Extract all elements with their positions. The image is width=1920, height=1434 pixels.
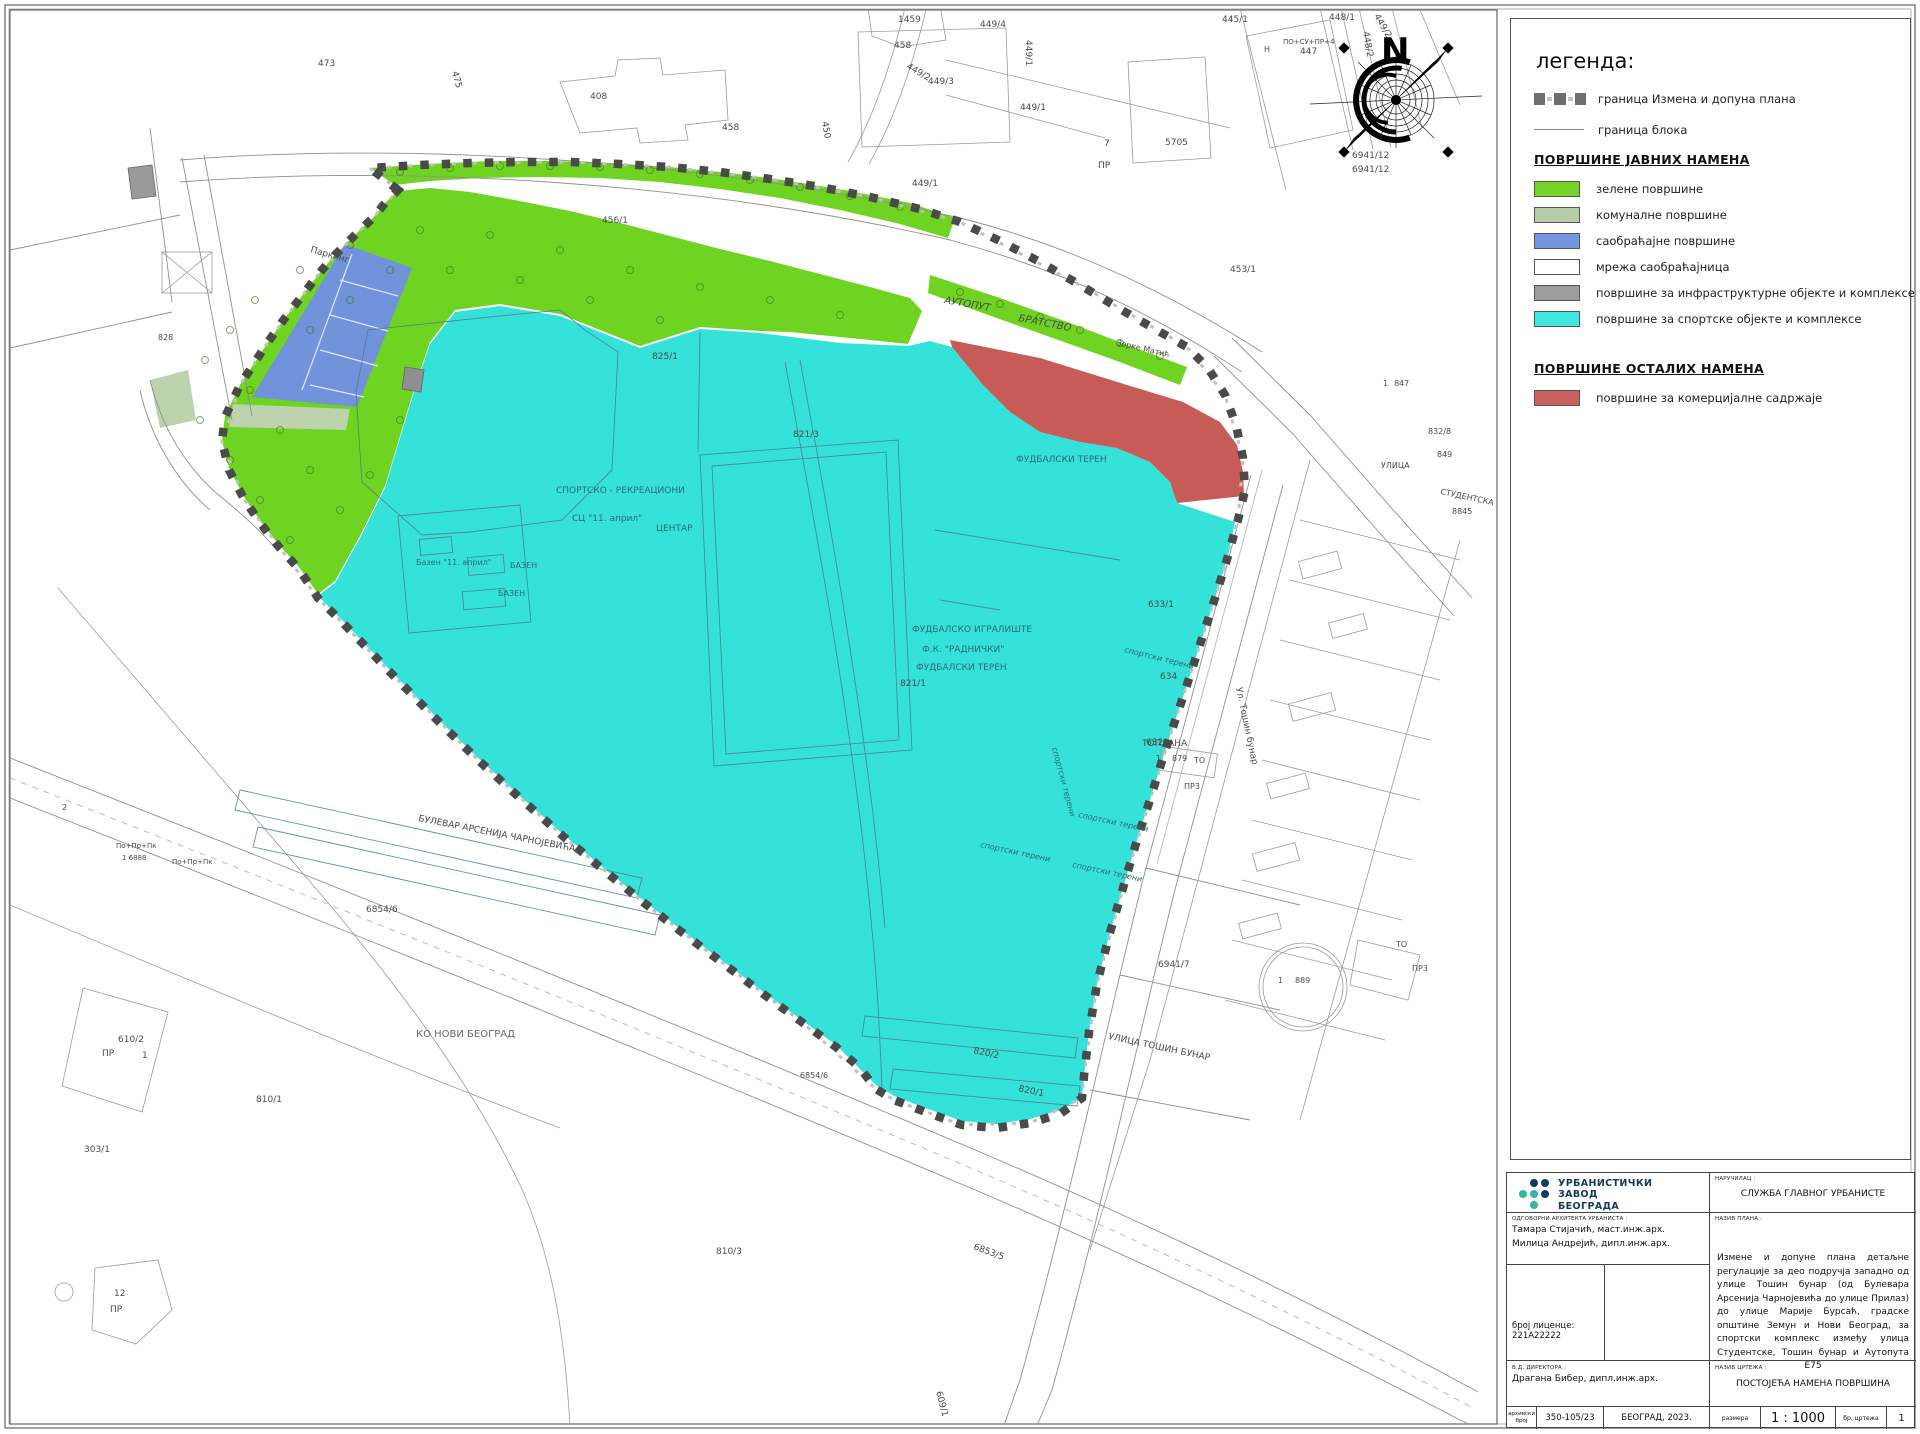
map-label: 6941/12: [1352, 151, 1389, 161]
map-label: 828: [158, 333, 173, 342]
map-label: 879: [1172, 754, 1187, 763]
map-label: 448/1: [1329, 13, 1355, 23]
map-label: 810/3: [716, 1247, 742, 1257]
map-label: 12: [114, 1289, 125, 1299]
map-label: 634: [1160, 672, 1177, 682]
client-cell: НАРУЧИЛАЦ : СЛУЖБА ГЛАВНОГ УРБАНИСТЕ: [1710, 1173, 1916, 1213]
company-logo: [1519, 1179, 1551, 1211]
legend-item: граница блока: [1534, 122, 1894, 137]
map-label: 1: [1383, 379, 1388, 388]
title-block: УРБАНИСТИЧКИ ЗАВОД БЕОГРАДА НАРУЧИЛАЦ : …: [1506, 1172, 1915, 1428]
map-label: 2: [62, 803, 67, 812]
map-label: СТУДЕНТСКА: [1440, 487, 1495, 507]
map-label: 449/1: [1020, 103, 1046, 113]
map-label: БАЗЕН: [498, 589, 525, 598]
director-label: В.Д. ДИРЕКТОРА :: [1507, 1361, 1709, 1374]
map-label: 847: [1394, 379, 1409, 388]
legend-item-label: зелене површине: [1596, 182, 1703, 196]
map-label: 408: [590, 92, 607, 102]
legend-title: легенда:: [1536, 49, 1635, 73]
legend-section-public: ПОВРШИНЕ ЈАВНИХ НАМЕНА зелене површинеко…: [1534, 152, 1904, 337]
legend-item: саобраћајне површине: [1534, 233, 1904, 249]
map-label: ПР: [1098, 161, 1111, 171]
sheet-label-cell: бр. цртежа: [1836, 1407, 1887, 1429]
place-year-cell: БЕОГРАД, 2023.: [1604, 1407, 1710, 1429]
map-label: 1: [142, 1051, 148, 1061]
legend-swatch: [1534, 259, 1580, 275]
map-label: ПР3: [1412, 964, 1428, 973]
map-label: 6941/12: [1352, 165, 1389, 175]
license-number: број лиценце: 221А22222: [1507, 1265, 1604, 1341]
scale-value-cell: 1 : 1000: [1761, 1407, 1836, 1429]
map-label: 449/1: [1023, 40, 1033, 66]
map-label: УЛИЦА ТОШИН БУНАР: [1107, 1032, 1211, 1063]
map-label: Базен "11. април": [416, 558, 492, 567]
legend-boundary-items: граница Измена и допуна планаграница бло…: [1534, 91, 1894, 153]
map-label: 5705: [1165, 138, 1188, 148]
legend-item: површине за инфраструктурне објекте и ко…: [1534, 285, 1904, 301]
map-label: 821/3: [793, 430, 819, 440]
map-label: 445/1: [1222, 15, 1248, 25]
director-name: Драгана Бибер, дипл.инж.арх.: [1507, 1374, 1709, 1384]
map-label: 456/1: [602, 216, 628, 226]
map-label: КО НОВИ БЕОГРАД: [416, 1029, 515, 1040]
map-label: 1: [1156, 754, 1161, 763]
map-label: ПР3: [1184, 782, 1200, 791]
map-label: ПР: [110, 1305, 123, 1315]
legend-item: мрежа саобраћајница: [1534, 259, 1904, 275]
legend-swatch: [1534, 390, 1580, 406]
map-label: УЛИЦА: [1381, 461, 1410, 470]
map-label: 7: [1104, 139, 1110, 149]
plan-sheet: N: [0, 0, 1920, 1434]
legend-item-label: мрежа саобраћајница: [1596, 260, 1730, 274]
map-label: 1459: [898, 15, 921, 25]
archive-number-cell: 350-105/23: [1537, 1407, 1604, 1429]
client-value: СЛУЖБА ГЛАВНОГ УРБАНИСТЕ: [1710, 1182, 1916, 1206]
legend-swatch: [1534, 311, 1580, 327]
map-label: ЦЕНТАР: [656, 524, 693, 534]
map-label: 8845: [1452, 507, 1472, 516]
map-label: 1 6888: [122, 854, 147, 862]
drawing-name-cell: НАЗИВ ЦРТЕЖА : ПОСТОЈЕЋА НАМЕНА ПОВРШИНА: [1710, 1361, 1916, 1407]
map-label: ФУДБАЛСКИ ТЕРЕН: [1016, 455, 1107, 465]
legend-panel: легенда: граница Измена и допуна планагр…: [1510, 18, 1911, 1160]
plan-name-cell: НАЗИВ ПЛАНА : Измене и допуне плана дета…: [1710, 1213, 1916, 1361]
map-label: СПОРТСКО - РЕКРЕАЦИОНИ: [556, 486, 685, 496]
map-label: 303/1: [84, 1145, 110, 1155]
map-label: Ф.К. "РАДНИЧКИ": [922, 645, 1004, 655]
architect-name: Милица Андрејић, дипл.инж.арх.: [1512, 1238, 1709, 1252]
plan-title: Измене и допуне плана детаљне регулације…: [1710, 1252, 1916, 1374]
legend-section-heading: ПОВРШИНЕ ОСТАЛИХ НАМЕНА: [1534, 361, 1904, 376]
legend-item-label: граница Измена и допуна плана: [1598, 92, 1796, 106]
map-label: ФУДБАЛСКИ ТЕРЕН: [916, 663, 1007, 673]
map-label: 453/1: [1230, 265, 1256, 275]
legend-item-label: површине за комерцијалне садржаје: [1596, 391, 1822, 405]
map-label: 450: [819, 121, 832, 140]
map-label: 633/1: [1148, 600, 1174, 610]
map-label: 447: [1300, 47, 1317, 57]
legend-item-label: комуналне површине: [1596, 208, 1727, 222]
map-label: 458: [894, 41, 911, 51]
architects-label: ОДГОВОРНИ АРХИТЕКТА УРБАНИСТА :: [1507, 1213, 1709, 1224]
map-label: 449/1: [912, 179, 938, 189]
sheet-number-cell: 1: [1887, 1407, 1916, 1429]
legend-swatch: [1534, 285, 1580, 301]
director-cell: В.Д. ДИРЕКТОРА : Драгана Бибер, дипл.инж…: [1507, 1361, 1710, 1407]
map-label: Н: [1264, 45, 1270, 54]
map-label: 6941/7: [1158, 960, 1190, 970]
legend-swatch: [1534, 207, 1580, 223]
map-label: 449/3: [928, 77, 954, 87]
map-label: 610/2: [118, 1035, 144, 1045]
map-label: 825/1: [652, 352, 678, 362]
legend-swatch: [1534, 233, 1580, 249]
map-label: 448/2: [1360, 31, 1374, 58]
map-label: ТОПЛАНА: [1141, 739, 1188, 749]
map-label: ПР: [102, 1049, 115, 1059]
map-label: 889: [1295, 976, 1310, 985]
archive-label-cell: архивски број: [1507, 1407, 1537, 1429]
map-label: 473: [318, 59, 335, 69]
map-label: 6854/6: [366, 905, 398, 915]
map-label: 609/1: [933, 1390, 949, 1418]
map-label: 810/1: [256, 1095, 282, 1105]
map-label: По+Пр+Пк: [172, 858, 212, 866]
map-label: СЦ "11. април": [572, 514, 642, 524]
map-label: 6854/6: [800, 1071, 828, 1080]
legend-item: граница Измена и допуна плана: [1534, 91, 1894, 106]
map-label: 849: [1437, 450, 1452, 459]
map-label: 458: [722, 123, 739, 133]
map-label: ТО: [1193, 756, 1205, 765]
legend-item-label: саобраћајне површине: [1596, 234, 1735, 248]
company-name: УРБАНИСТИЧКИ ЗАВОД БЕОГРАДА: [1558, 1178, 1652, 1212]
map-label: БАЗЕН: [510, 561, 537, 570]
map-label: 832/8: [1428, 427, 1451, 436]
architects-cell: ОДГОВОРНИ АРХИТЕКТА УРБАНИСТА : Тамара С…: [1507, 1213, 1710, 1265]
license-cell: број лиценце: 221А22222: [1507, 1265, 1605, 1361]
legend-item-label: граница блока: [1598, 123, 1687, 137]
map-label: ТО: [1395, 940, 1407, 949]
drawing-title: ПОСТОЈЕЋА НАМЕНА ПОВРШИНА: [1710, 1371, 1916, 1397]
legend-item: површине за комерцијалне садржаје: [1534, 390, 1904, 406]
map-label: 475: [449, 70, 463, 89]
client-label: НАРУЧИЛАЦ :: [1710, 1173, 1916, 1182]
map-label: 6853/5: [972, 1242, 1005, 1262]
legend-section-other: ПОВРШИНЕ ОСТАЛИХ НАМЕНА површине за коме…: [1534, 361, 1904, 416]
map-label: 1: [1278, 976, 1283, 985]
map-label: ПО+СУ+ПР+4: [1283, 38, 1335, 46]
title-block-logo-cell: УРБАНИСТИЧКИ ЗАВОД БЕОГРАДА: [1507, 1173, 1710, 1213]
empty-cell: [1605, 1265, 1710, 1361]
map-label: 449/4: [980, 20, 1006, 30]
legend-swatch: [1534, 181, 1580, 197]
legend-item: комуналне површине: [1534, 207, 1904, 223]
architect-name: Тамара Стијачић, маст.инж.арх.: [1512, 1224, 1709, 1238]
legend-item: површине за спортске објекте и комплексе: [1534, 311, 1904, 327]
plan-label: НАЗИВ ПЛАНА :: [1710, 1213, 1916, 1222]
drawing-label: НАЗИВ ЦРТЕЖА :: [1710, 1361, 1916, 1371]
map-label: 449/2: [1371, 13, 1393, 40]
map-label: По+Пр+Пк: [116, 842, 156, 850]
map-label: Ул. Тошин бунар: [1233, 687, 1259, 766]
map-label: ФУДБАЛСКО ИГРАЛИШТЕ: [912, 625, 1032, 635]
legend-item: зелене површине: [1534, 181, 1904, 197]
legend-item-label: површине за инфраструктурне објекте и ко…: [1596, 286, 1915, 300]
scale-label-cell: размера: [1710, 1407, 1761, 1429]
map-label: 821/1: [900, 679, 926, 689]
compass-rose: N: [1310, 31, 1482, 158]
legend-section-heading: ПОВРШИНЕ ЈАВНИХ НАМЕНА: [1534, 152, 1904, 167]
legend-item-label: површине за спортске објекте и комплексе: [1596, 312, 1861, 326]
